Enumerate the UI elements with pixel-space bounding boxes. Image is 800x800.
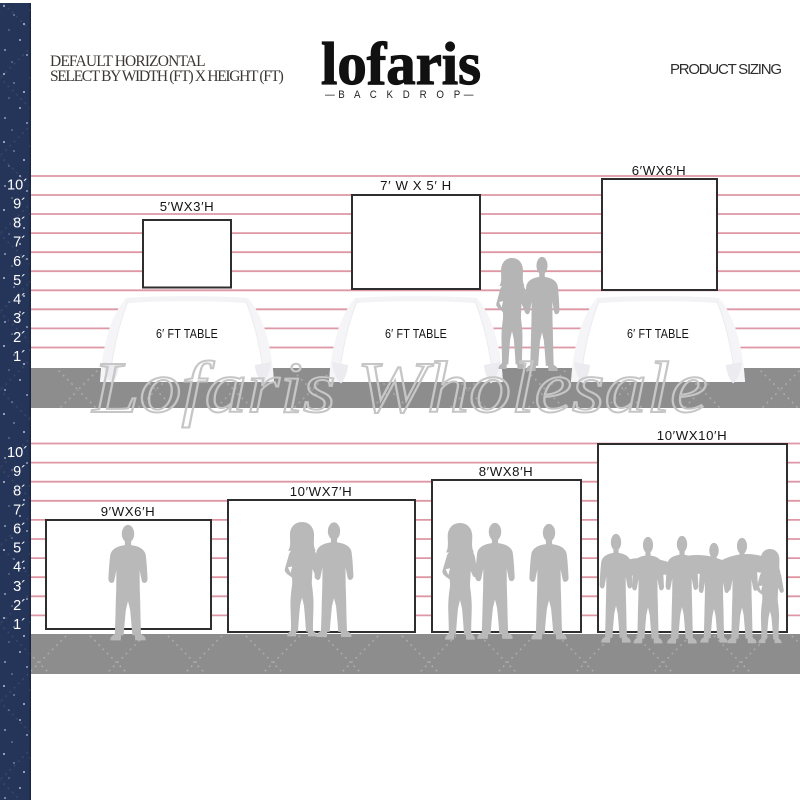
svg-text:5´: 5´: [13, 273, 26, 289]
svg-text:6´: 6´: [13, 254, 26, 270]
svg-text:4´: 4´: [13, 560, 26, 576]
svg-text:8′WX8′H: 8′WX8′H: [479, 464, 534, 479]
svg-text:—B A C K D R O P—: —B A C K D R O P—: [325, 89, 477, 101]
svg-text:7´: 7´: [13, 235, 26, 251]
svg-text:lofaris: lofaris: [321, 31, 481, 97]
svg-text:10′WX7′H: 10′WX7′H: [290, 484, 353, 499]
svg-text:6´: 6´: [13, 522, 26, 538]
svg-text:8´: 8´: [13, 483, 26, 499]
svg-text:7′ W X 5′ H: 7′ W X 5′ H: [380, 178, 452, 193]
svg-text:8´: 8´: [13, 216, 26, 232]
svg-text:9′WX6′H: 9′WX6′H: [101, 504, 156, 519]
svg-text:1´: 1´: [13, 617, 26, 633]
svg-text:9´: 9´: [13, 464, 26, 480]
svg-text:PRODUCT SIZING: PRODUCT SIZING: [670, 61, 783, 78]
svg-text:6′WX6′H: 6′WX6′H: [632, 163, 687, 178]
svg-text:3´: 3´: [13, 311, 26, 327]
svg-text:10´: 10´: [7, 445, 28, 461]
svg-text:9´: 9´: [13, 197, 26, 213]
svg-text:SELECT BY WIDTH (FT) X HEIGHT: SELECT BY WIDTH (FT) X HEIGHT (FT): [50, 68, 284, 85]
svg-text:4´: 4´: [13, 292, 26, 308]
svg-text:7´: 7´: [13, 502, 26, 518]
svg-text:5´: 5´: [13, 541, 26, 557]
svg-text:Lofaris Wholesale: Lofaris Wholesale: [91, 347, 707, 428]
svg-text:10′WX10′H: 10′WX10′H: [657, 428, 727, 443]
svg-text:1´: 1´: [13, 349, 26, 365]
svg-text:2´: 2´: [13, 598, 26, 614]
svg-text:5′WX3′H: 5′WX3′H: [160, 199, 215, 214]
svg-text:2´: 2´: [13, 330, 26, 346]
svg-text:10´: 10´: [7, 178, 28, 194]
svg-text:3´: 3´: [13, 579, 26, 595]
